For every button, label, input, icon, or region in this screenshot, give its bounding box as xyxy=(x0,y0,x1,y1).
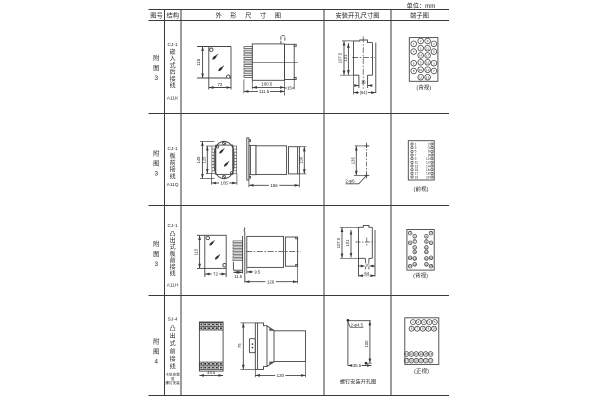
svg-text:3: 3 xyxy=(155,75,159,82)
svg-text:17: 17 xyxy=(405,359,409,363)
svg-text:10: 10 xyxy=(419,68,423,72)
svg-text:19: 19 xyxy=(415,175,419,179)
svg-text:图: 图 xyxy=(153,64,159,72)
svg-text:11: 11 xyxy=(426,68,429,72)
svg-text:2-φ4.5: 2-φ4.5 xyxy=(351,322,364,327)
svg-text:5: 5 xyxy=(434,320,436,324)
svg-text:9: 9 xyxy=(420,60,422,64)
svg-text:16: 16 xyxy=(429,352,433,356)
svg-text:图: 图 xyxy=(153,160,159,168)
svg-text:3: 3 xyxy=(423,320,425,324)
svg-text:板: 板 xyxy=(170,152,176,160)
svg-text:CJ-1: CJ-1 xyxy=(168,146,178,152)
svg-text:4: 4 xyxy=(155,359,159,366)
svg-text:嵌: 嵌 xyxy=(170,49,176,56)
svg-text:4: 4 xyxy=(429,320,431,324)
svg-text:35.5: 35.5 xyxy=(353,363,362,368)
svg-text:14: 14 xyxy=(419,352,423,356)
svg-text:126: 126 xyxy=(267,279,275,284)
svg-text:72: 72 xyxy=(213,272,218,277)
svg-text:板: 板 xyxy=(170,250,176,258)
svg-text:13: 13 xyxy=(415,352,419,356)
svg-text:105: 105 xyxy=(221,181,229,186)
svg-text:16: 16 xyxy=(361,79,366,84)
svg-text:接: 接 xyxy=(170,166,176,174)
svg-text:1: 1 xyxy=(412,320,414,324)
svg-text:3: 3 xyxy=(433,61,435,65)
svg-text:入: 入 xyxy=(170,56,176,63)
svg-text:6: 6 xyxy=(413,61,415,65)
svg-text:17: 17 xyxy=(426,54,430,58)
svg-text:9: 9 xyxy=(427,39,429,43)
svg-text:111.5: 111.5 xyxy=(259,89,270,94)
svg-text:64: 64 xyxy=(364,271,369,276)
svg-text:107.5: 107.5 xyxy=(337,52,342,63)
svg-text:附: 附 xyxy=(153,337,160,346)
svg-text:7: 7 xyxy=(416,327,418,331)
svg-text:14: 14 xyxy=(419,54,423,58)
svg-text:前: 前 xyxy=(170,256,176,264)
svg-text:线: 线 xyxy=(170,82,176,90)
svg-text:115: 115 xyxy=(193,248,198,255)
svg-text:44.5: 44.5 xyxy=(207,370,216,375)
svg-text:接: 接 xyxy=(170,75,176,83)
svg-text:19: 19 xyxy=(415,359,419,363)
svg-text:结构: 结构 xyxy=(167,10,180,19)
svg-text:9.5: 9.5 xyxy=(254,270,260,275)
svg-text:CJ-1: CJ-1 xyxy=(168,42,178,48)
svg-text:100.5: 100.5 xyxy=(261,82,273,87)
svg-text:CJ-1: CJ-1 xyxy=(168,223,178,229)
svg-text:线: 线 xyxy=(170,172,176,180)
svg-text:15: 15 xyxy=(426,60,430,64)
svg-text:8: 8 xyxy=(413,69,415,73)
svg-text:135: 135 xyxy=(350,157,355,165)
svg-text:接: 接 xyxy=(170,355,176,363)
svg-text:20: 20 xyxy=(419,359,423,363)
svg-text:6: 6 xyxy=(411,327,413,331)
svg-text:单位：mm: 单位：mm xyxy=(407,2,436,10)
svg-text:15: 15 xyxy=(424,352,428,356)
svg-text:115: 115 xyxy=(196,58,201,66)
svg-text:SJ-4: SJ-4 xyxy=(168,317,178,323)
svg-text:出: 出 xyxy=(170,332,176,340)
svg-text:2: 2 xyxy=(418,320,420,324)
svg-text:19: 19 xyxy=(426,75,430,79)
svg-text:21: 21 xyxy=(424,359,428,363)
svg-text:图: 图 xyxy=(153,348,159,356)
svg-text:101: 101 xyxy=(343,54,348,62)
svg-text:5: 5 xyxy=(420,46,422,50)
svg-text:前: 前 xyxy=(170,159,176,167)
svg-text:(64): (64) xyxy=(360,90,368,95)
svg-text:外形尺寸图: 外形尺寸图 xyxy=(216,10,290,19)
svg-text:图: 图 xyxy=(153,250,159,258)
svg-text:螺钉安装: 螺钉安装 xyxy=(165,380,180,385)
svg-text:式: 式 xyxy=(170,243,176,251)
svg-text:附: 附 xyxy=(153,149,160,158)
svg-text:式: 式 xyxy=(170,340,176,348)
svg-text:12: 12 xyxy=(410,352,414,356)
svg-text:156: 156 xyxy=(270,183,278,188)
svg-text:3: 3 xyxy=(155,261,159,268)
svg-text:20: 20 xyxy=(426,175,430,179)
svg-text:10: 10 xyxy=(432,327,436,331)
svg-text:72: 72 xyxy=(217,82,222,87)
svg-text:安装开孔尺寸图: 安装开孔尺寸图 xyxy=(335,10,379,19)
svg-text:螺钉安装开孔图: 螺钉安装开孔图 xyxy=(340,377,376,385)
svg-text:2: 2 xyxy=(420,39,422,43)
svg-text:101: 101 xyxy=(345,239,350,247)
svg-text:16: 16 xyxy=(365,262,370,267)
svg-text:11.5: 11.5 xyxy=(234,274,243,279)
svg-text:12: 12 xyxy=(419,75,423,79)
svg-text:(背视): (背视) xyxy=(416,84,431,92)
svg-text:前: 前 xyxy=(170,348,176,356)
svg-text:6: 6 xyxy=(433,50,435,54)
svg-text:130: 130 xyxy=(299,156,304,164)
svg-text:附: 附 xyxy=(153,239,160,248)
svg-text:11: 11 xyxy=(426,46,429,50)
svg-text:120: 120 xyxy=(277,373,285,378)
svg-text:2-φ6: 2-φ6 xyxy=(345,178,355,183)
svg-text:凸: 凸 xyxy=(170,231,176,238)
svg-text:100: 100 xyxy=(364,340,369,348)
svg-text:端子图: 端子图 xyxy=(410,10,429,19)
svg-text:图号: 图号 xyxy=(150,11,163,19)
svg-text:(前视): (前视) xyxy=(414,185,429,193)
svg-text:接: 接 xyxy=(170,263,176,271)
svg-text:107.5: 107.5 xyxy=(336,237,341,248)
svg-text:线: 线 xyxy=(170,270,176,278)
svg-text:1: 1 xyxy=(433,42,435,46)
svg-text:75: 75 xyxy=(237,343,242,348)
svg-text:附: 附 xyxy=(153,53,160,62)
svg-text:A11K: A11K xyxy=(167,96,179,102)
svg-text:A11H: A11H xyxy=(167,283,179,289)
svg-text:式: 式 xyxy=(170,61,176,69)
svg-text:线: 线 xyxy=(170,363,176,371)
svg-text:3: 3 xyxy=(155,171,159,178)
svg-text:后: 后 xyxy=(170,68,176,76)
svg-text:7: 7 xyxy=(413,42,415,46)
svg-text:15: 15 xyxy=(287,85,292,90)
svg-text:8: 8 xyxy=(422,327,424,331)
svg-text:125: 125 xyxy=(201,156,206,164)
svg-text:7: 7 xyxy=(433,69,435,73)
svg-text:18: 18 xyxy=(410,359,414,363)
svg-text:(背视): (背视) xyxy=(413,271,428,279)
svg-text:22: 22 xyxy=(429,359,433,363)
svg-text:4: 4 xyxy=(413,50,415,54)
svg-text:11: 11 xyxy=(405,352,408,356)
svg-text:9: 9 xyxy=(428,327,430,331)
svg-text:149: 149 xyxy=(196,156,201,164)
svg-text:(正视): (正视) xyxy=(414,367,429,375)
svg-text:出: 出 xyxy=(170,237,176,245)
svg-text:凸: 凸 xyxy=(170,326,176,333)
svg-text:A11Q: A11Q xyxy=(167,182,179,188)
